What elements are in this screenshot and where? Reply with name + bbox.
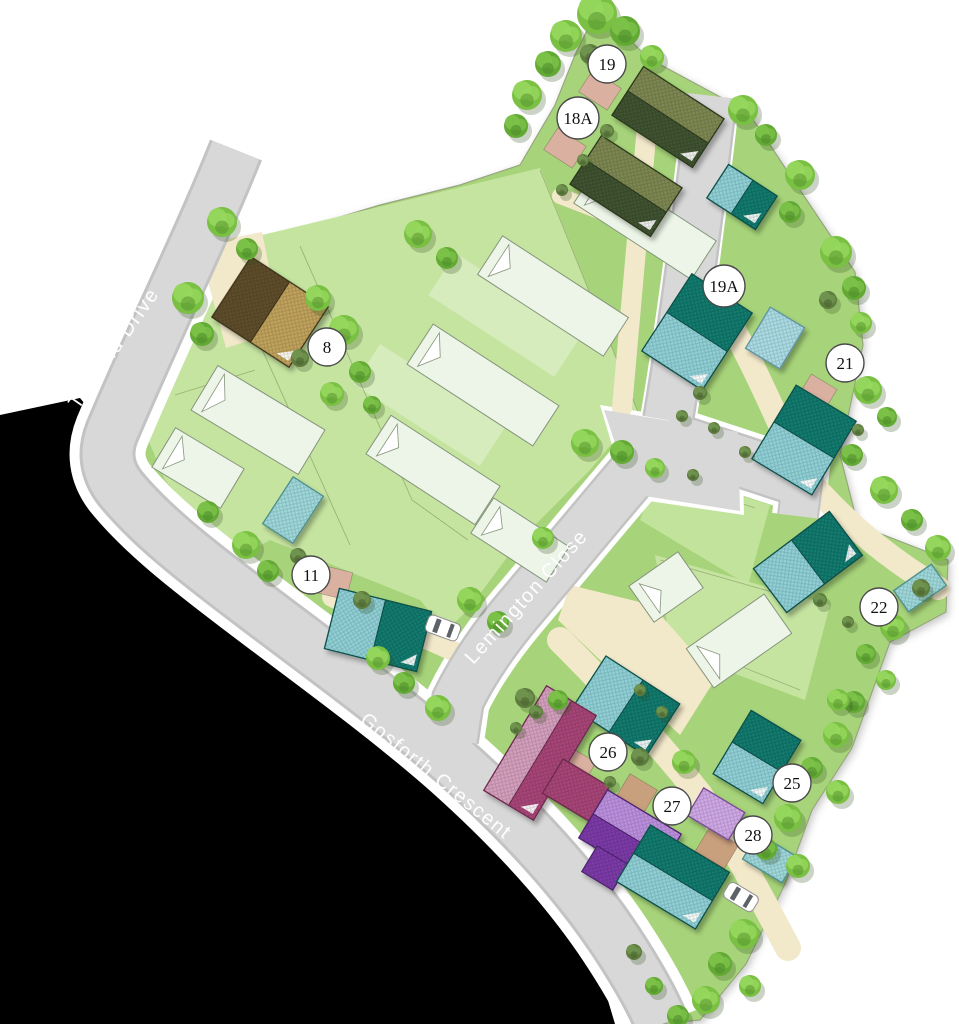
tree-icon xyxy=(786,854,814,883)
tree-icon xyxy=(870,476,902,509)
plot-marker-8[interactable]: 8 xyxy=(308,328,346,366)
plot-marker-22[interactable]: 22 xyxy=(860,588,898,626)
site-plan-map: Tanfield Drive Lemington Close Gosforth … xyxy=(0,0,959,1024)
plot-number-label: 19 xyxy=(599,55,616,74)
plot-number-label: 11 xyxy=(303,566,319,585)
plot-number-label: 22 xyxy=(871,598,888,617)
plot-number-label: 18A xyxy=(563,109,593,128)
tree-icon xyxy=(901,509,927,536)
plot-marker-26[interactable]: 26 xyxy=(589,733,627,771)
site-plan-canvas: Tanfield Drive Lemington Close Gosforth … xyxy=(0,0,959,1024)
plot-number-label: 25 xyxy=(784,774,801,793)
plot-marker-28[interactable]: 28 xyxy=(734,816,772,854)
plot-number-label: 8 xyxy=(323,338,332,357)
tree-icon xyxy=(854,376,886,409)
plot-number-label: 26 xyxy=(600,743,617,762)
plot-marker-11[interactable]: 11 xyxy=(292,556,330,594)
plot-marker-25[interactable]: 25 xyxy=(773,764,811,802)
tree-icon xyxy=(739,975,765,1002)
plot-number-label: 27 xyxy=(664,797,682,816)
plot-marker-19[interactable]: 19 xyxy=(588,45,626,83)
plot-number-label: 21 xyxy=(837,354,854,373)
plot-marker-19A[interactable]: 19A xyxy=(703,265,745,307)
plot-marker-27[interactable]: 27 xyxy=(653,787,691,825)
plot-marker-18A[interactable]: 18A xyxy=(557,97,599,139)
tree-icon xyxy=(876,670,900,695)
tree-icon xyxy=(535,51,565,82)
tree-icon xyxy=(841,444,867,471)
tree-icon xyxy=(877,407,901,432)
tree-icon xyxy=(504,114,532,143)
tree-icon xyxy=(512,80,546,115)
tree-icon xyxy=(826,780,854,809)
plot-marker-21[interactable]: 21 xyxy=(826,344,864,382)
plot-number-label: 19A xyxy=(709,277,739,296)
tree-icon xyxy=(852,424,868,441)
plot-number-label: 28 xyxy=(745,826,762,845)
